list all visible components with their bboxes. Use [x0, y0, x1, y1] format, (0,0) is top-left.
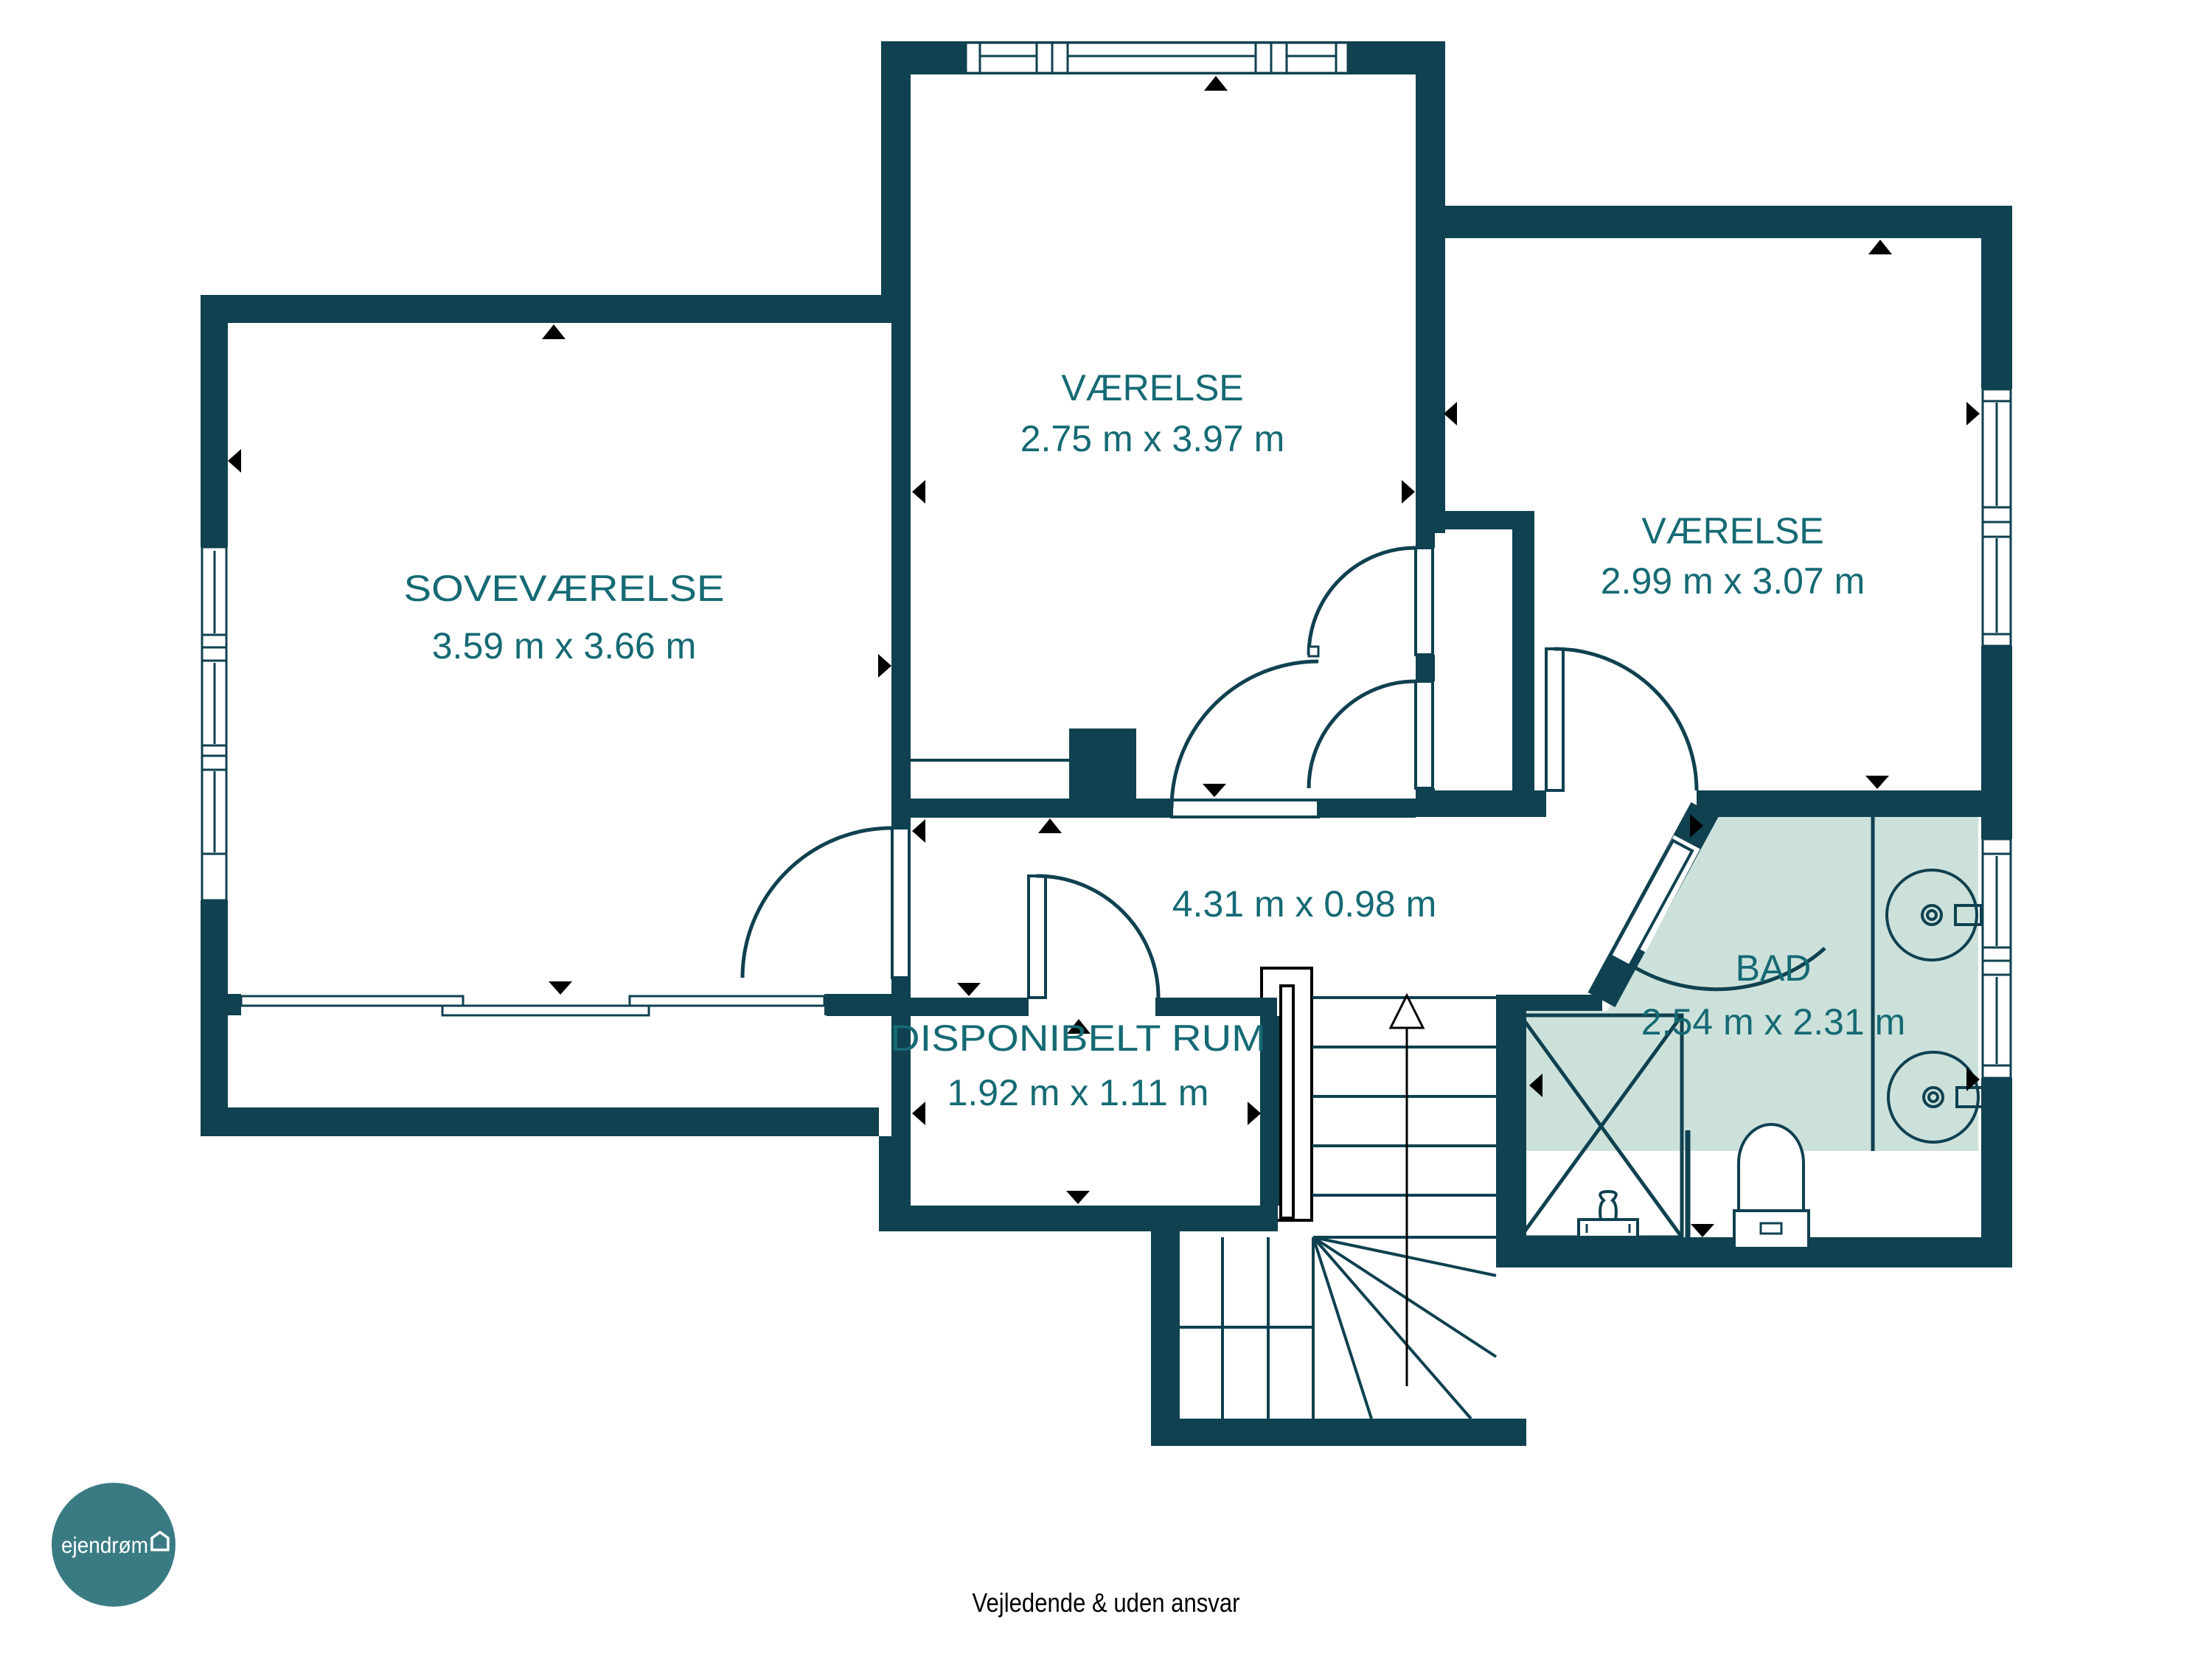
svg-text:Vejledende & uden ansvar: Vejledende & uden ansvar	[973, 1587, 1240, 1618]
svg-text:4.31 m x 0.98 m: 4.31 m x 0.98 m	[1172, 883, 1437, 925]
svg-text:1.92 m x 1.11 m: 1.92 m x 1.11 m	[947, 1072, 1209, 1113]
svg-text:ejendrøm: ejendrøm	[61, 1532, 148, 1558]
svg-text:2.75 m x 3.97 m: 2.75 m x 3.97 m	[1020, 418, 1285, 459]
svg-text:VÆRELSE: VÆRELSE	[1061, 367, 1243, 408]
svg-text:DISPONIBELT RUM: DISPONIBELT RUM	[890, 1018, 1266, 1059]
svg-text:BAD: BAD	[1736, 947, 1812, 989]
svg-text:3.59 m x 3.66 m: 3.59 m x 3.66 m	[432, 625, 697, 667]
svg-text:VÆRELSE: VÆRELSE	[1641, 510, 1823, 552]
svg-text:SOVEVÆRELSE: SOVEVÆRELSE	[404, 568, 725, 609]
svg-text:2.54 m x 2.31 m: 2.54 m x 2.31 m	[1641, 1001, 1906, 1043]
svg-text:2.99 m x 3.07 m: 2.99 m x 3.07 m	[1601, 560, 1865, 602]
